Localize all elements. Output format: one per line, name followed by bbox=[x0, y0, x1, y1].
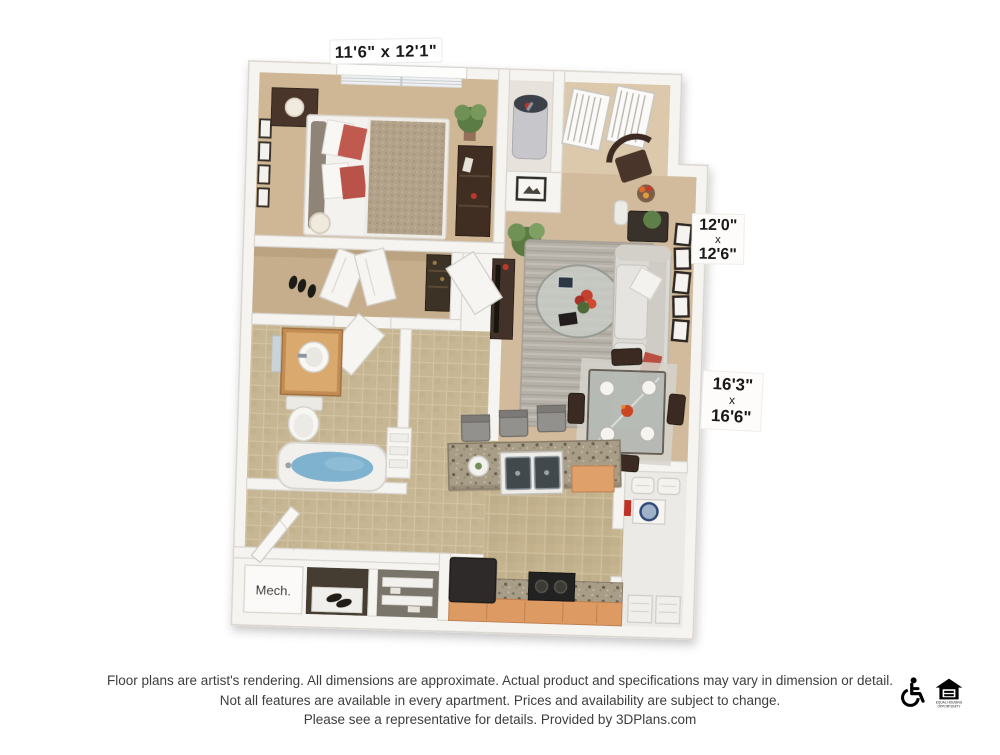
mech-room-label: Mech. bbox=[255, 582, 291, 598]
hall-closet-2 bbox=[377, 569, 439, 618]
dimension-plaque-living: 12'0" x 12'6" bbox=[692, 214, 745, 265]
wheelchair-accessible-icon bbox=[898, 676, 928, 710]
mirror bbox=[271, 336, 281, 372]
bathtub bbox=[278, 442, 387, 491]
coffee-table bbox=[535, 264, 621, 339]
pantry-cabinet bbox=[572, 466, 614, 492]
svg-text:12'6": 12'6" bbox=[699, 246, 737, 264]
stove bbox=[528, 572, 575, 601]
hall-closet-1 bbox=[306, 567, 369, 616]
svg-text:16'6": 16'6" bbox=[710, 406, 751, 427]
disclaimer-line-2: Not all features are available in every … bbox=[0, 691, 1000, 711]
disclaimer: Floor plans are artist's rendering. All … bbox=[0, 671, 1000, 730]
water-heater bbox=[512, 94, 548, 159]
refrigerator bbox=[449, 557, 496, 602]
disclaimer-line-3: Please see a representative for details.… bbox=[0, 710, 1000, 730]
equal-housing-opportunity-icon: EQUAL HOUSING OPPORTUNITY bbox=[933, 676, 965, 710]
storage-band: Mech. bbox=[244, 565, 439, 618]
svg-text:x: x bbox=[729, 393, 736, 407]
bed-blanket bbox=[366, 119, 448, 237]
floor-lamp-icon bbox=[310, 213, 331, 234]
bedroom-media-stand bbox=[456, 146, 493, 237]
floor-plan-3d: Mech. bbox=[231, 61, 710, 639]
closet-organizer bbox=[425, 255, 451, 312]
footer-icons: EQUAL HOUSING OPPORTUNITY bbox=[898, 676, 970, 714]
svg-text:12'0": 12'0" bbox=[699, 217, 737, 235]
detergent-bottle-icon bbox=[624, 500, 631, 516]
bedroom-window bbox=[336, 64, 467, 88]
dimension-plaque-bedroom: 11'6" x 12'1" bbox=[330, 38, 442, 64]
red-pillow bbox=[340, 165, 367, 199]
dimension-plaque-great-room: 16'3" x 16'6" bbox=[701, 370, 764, 431]
linen-shelf bbox=[386, 427, 412, 478]
vanity bbox=[281, 328, 343, 396]
floor-plan-page: Mech. 11'6" x 12'1" 12'0" x 12 bbox=[0, 0, 1000, 750]
double-sink bbox=[500, 451, 563, 494]
floor-vase-icon bbox=[614, 200, 628, 224]
svg-text:x: x bbox=[715, 234, 721, 246]
svg-text:OPPORTUNITY: OPPORTUNITY bbox=[938, 704, 962, 708]
mech-room: Mech. bbox=[244, 565, 303, 614]
tablet-icon bbox=[558, 277, 573, 288]
svg-text:16'3": 16'3" bbox=[712, 374, 753, 395]
floor-plan-canvas: Mech. 11'6" x 12'1" 12'0" x 12 bbox=[0, 0, 1000, 750]
table-lamp-icon bbox=[285, 98, 304, 117]
svg-text:11'6" x 12'1": 11'6" x 12'1" bbox=[335, 42, 438, 62]
disclaimer-line-1: Floor plans are artist's rendering. All … bbox=[0, 671, 1000, 691]
gallery-wall-frames bbox=[672, 224, 692, 341]
